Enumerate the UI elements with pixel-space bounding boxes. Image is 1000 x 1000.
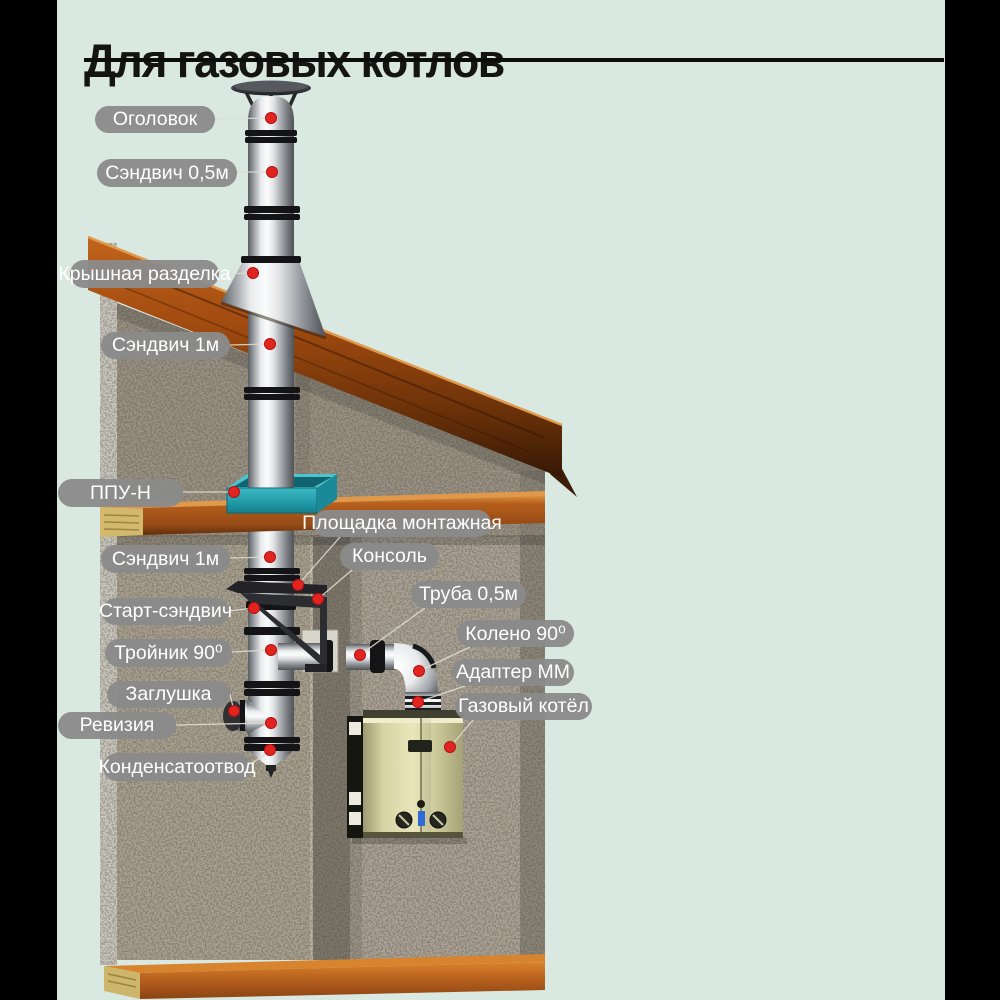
gas-boiler: [347, 710, 467, 844]
label-sandwich-1m-top: Сэндвич 1м: [101, 332, 230, 359]
label-gazovy-kotel: Газовый котёл: [455, 693, 592, 720]
label-adapter-mm: Адаптер ММ: [452, 659, 574, 686]
diagram-page: Для газовых котлов: [0, 0, 1000, 1000]
label-zaglushka: Заглушка: [107, 681, 230, 708]
label-troinik-90: Тройник 90⁰: [105, 639, 232, 667]
base-floor: [104, 954, 545, 999]
label-kondensatootvod: Конденсатоотвод: [103, 753, 251, 781]
label-ppu-n: ППУ-Н: [58, 479, 183, 507]
boiler-display: [408, 740, 432, 752]
label-kryshnaya-razdelka: Крышная разделка: [70, 260, 219, 288]
boiler-indicator: [418, 811, 425, 826]
label-sandwich-05: Сэндвич 0,5м: [97, 159, 237, 187]
label-truba-05: Труба 0,5м: [411, 581, 526, 608]
label-koleno-90: Колено 90⁰: [457, 620, 574, 647]
label-start-sandwich: Старт-сэндвич: [102, 598, 229, 625]
label-reviziya: Ревизия: [58, 712, 176, 739]
label-konsol: Консоль: [340, 543, 439, 570]
label-ploshchadka-montazhnaya: Площадка монтажная: [313, 510, 491, 537]
label-sandwich-1m-low: Сэндвич 1м: [101, 545, 230, 573]
label-ogolovok: Оголовок: [95, 106, 215, 133]
